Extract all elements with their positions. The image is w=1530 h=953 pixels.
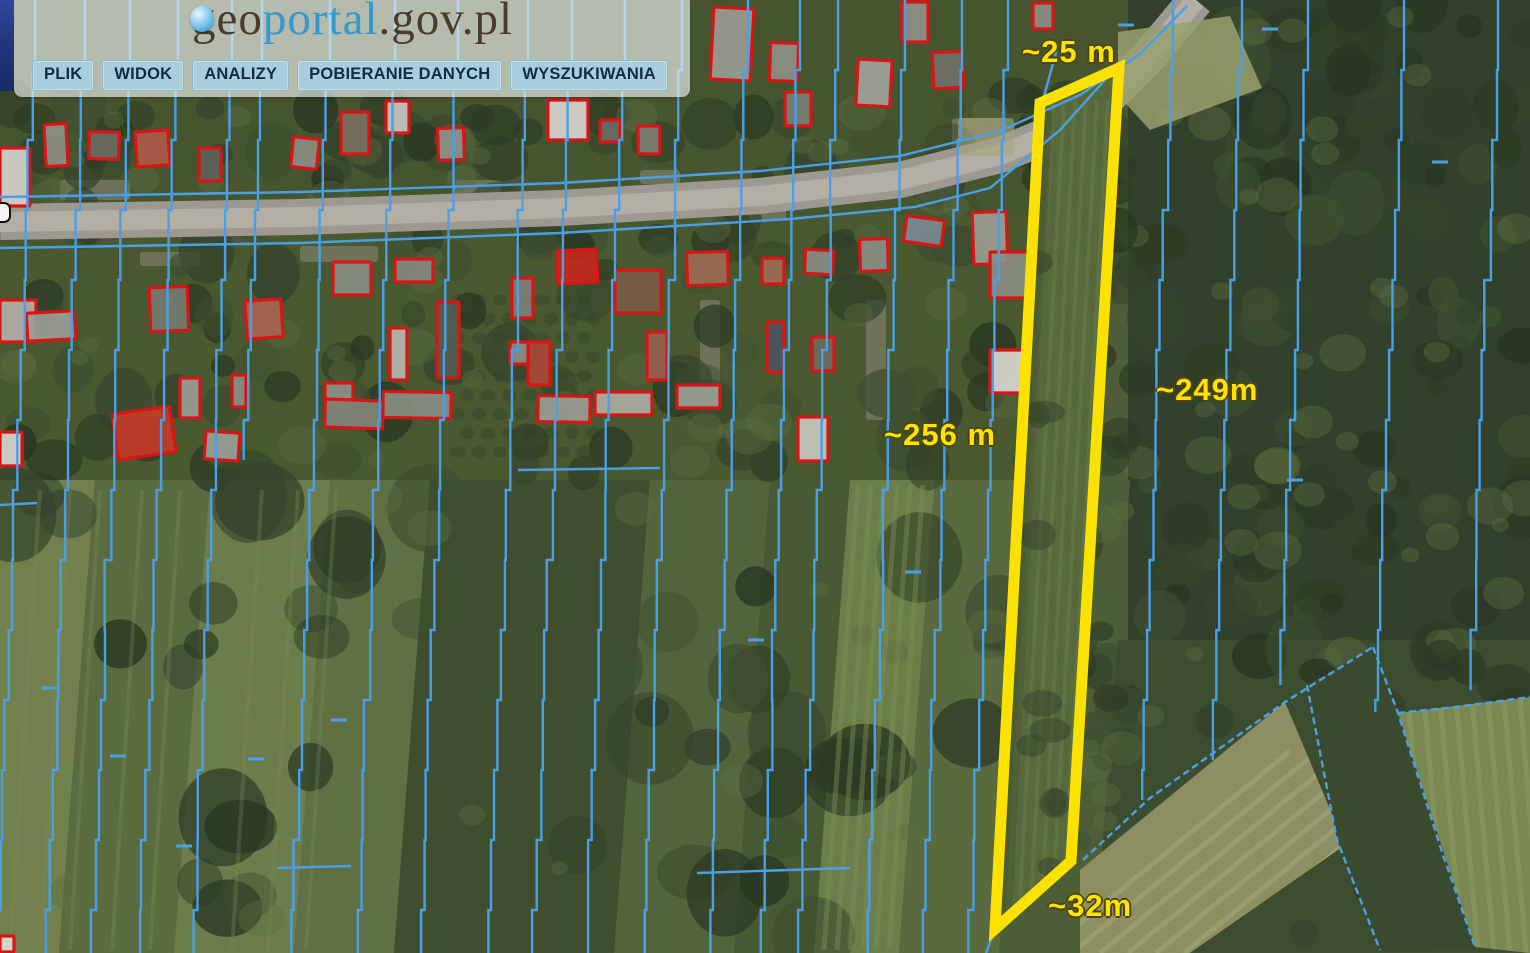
building-outline bbox=[647, 332, 667, 380]
building-outline bbox=[180, 378, 200, 418]
logo-text-portal: portal bbox=[263, 0, 379, 45]
building-outline bbox=[341, 112, 369, 154]
building-outline bbox=[291, 137, 320, 170]
building-outline bbox=[767, 322, 784, 372]
building-outline bbox=[990, 350, 1023, 393]
building-outline bbox=[769, 43, 798, 82]
building-outline bbox=[686, 251, 728, 285]
building-outline bbox=[512, 278, 533, 318]
building-outline bbox=[638, 126, 660, 154]
map-canvas[interactable] bbox=[0, 0, 1530, 953]
map-edge-button[interactable] bbox=[0, 202, 11, 223]
building-outline bbox=[798, 417, 828, 461]
building-outline bbox=[990, 252, 1028, 298]
menu-button-analizy[interactable]: ANALIZY bbox=[192, 60, 289, 91]
building-outline bbox=[390, 328, 407, 380]
building-outline bbox=[903, 215, 944, 246]
building-outline bbox=[804, 249, 833, 274]
menu-button-pobieranie-danych[interactable]: POBIERANIE DANYCH bbox=[297, 60, 502, 91]
building-outline bbox=[135, 130, 170, 167]
building-outline bbox=[395, 259, 433, 282]
building-outline bbox=[112, 406, 176, 460]
building-outline bbox=[856, 59, 892, 107]
building-outline bbox=[932, 51, 964, 89]
building-outline bbox=[437, 128, 464, 161]
main-menu: PLIK WIDOK ANALIZY POBIERANIE DANYCH WYS… bbox=[32, 60, 668, 91]
logo-drop-icon bbox=[190, 6, 214, 32]
building-outline bbox=[538, 396, 590, 423]
menu-button-widok[interactable]: WIDOK bbox=[102, 60, 184, 91]
building-outline bbox=[0, 936, 14, 952]
building-outline bbox=[383, 391, 451, 418]
geoportal-logo: geoportal.gov.pl bbox=[192, 0, 513, 46]
building-outline bbox=[199, 148, 221, 181]
building-outline bbox=[149, 286, 189, 331]
building-outline bbox=[0, 432, 22, 466]
building-outline bbox=[325, 399, 384, 429]
building-outline bbox=[204, 431, 240, 461]
building-outline bbox=[762, 258, 784, 284]
building-outline bbox=[437, 302, 459, 378]
building-outline bbox=[600, 120, 620, 142]
building-outline bbox=[859, 239, 888, 272]
building-outline bbox=[785, 92, 811, 126]
building-outline bbox=[386, 101, 409, 133]
building-outline bbox=[595, 392, 652, 415]
building-outline bbox=[333, 262, 371, 295]
menu-button-wyszukiwania[interactable]: WYSZUKIWANIA bbox=[510, 60, 667, 91]
building-outline bbox=[677, 385, 720, 408]
geoportal-window: ~25 m ~249m ~256 m ~32m geoportal.gov.pl… bbox=[0, 0, 1530, 953]
building-outline bbox=[528, 342, 550, 385]
building-outline bbox=[615, 270, 661, 313]
sidebar-edge-strip bbox=[0, 0, 14, 91]
building-outline bbox=[89, 131, 120, 159]
building-outline bbox=[26, 311, 75, 341]
building-outline bbox=[44, 123, 68, 166]
logo-text-govpl: .gov.pl bbox=[379, 0, 514, 45]
building-outline bbox=[1033, 3, 1053, 29]
building-outline bbox=[232, 375, 246, 407]
menu-button-plik[interactable]: PLIK bbox=[32, 60, 94, 91]
header-panel: geoportal.gov.pl PLIK WIDOK ANALIZY POBI… bbox=[14, 0, 690, 97]
